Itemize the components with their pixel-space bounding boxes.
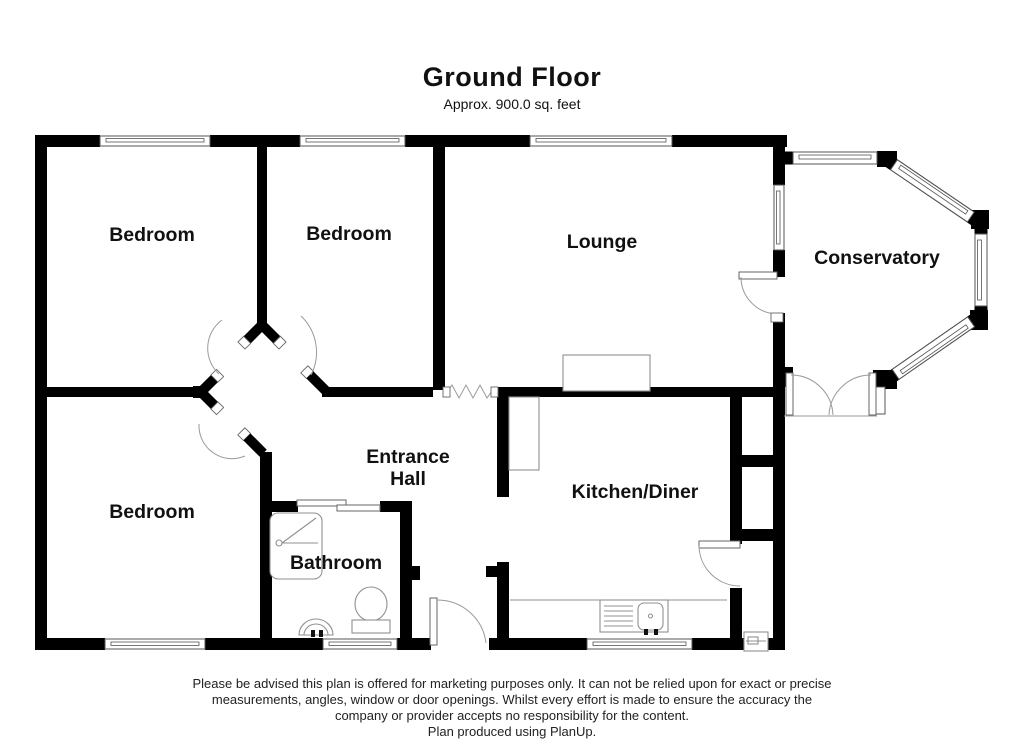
room-label-conservatory: Conservatory: [814, 247, 940, 269]
utility-meter-box: [744, 632, 768, 651]
wash-basin: [299, 619, 333, 637]
bathroom-sliding-door: [297, 500, 380, 511]
room-label-bedroom-top-left: Bedroom: [109, 224, 195, 246]
window-symbol: [891, 160, 975, 222]
room-label-bedroom-top-middle: Bedroom: [306, 223, 392, 245]
kitchen-sink: [600, 600, 668, 635]
floor-plan-canvas: Bedroom Bedroom Lounge Conservatory Bedr…: [0, 0, 1024, 745]
toilet: [352, 587, 390, 633]
conservatory-bay: [775, 151, 989, 416]
lounge-conservatory-door: [739, 272, 783, 322]
hall-door-arcs: [199, 316, 317, 459]
window-symbol: [105, 639, 205, 649]
room-label-entrance-hall-line1: Entrance: [366, 446, 450, 468]
floor-plan-page: Ground Floor Approx. 900.0 sq. feet: [0, 0, 1024, 745]
window-symbol: [587, 639, 692, 649]
zigzag-opening: [443, 385, 498, 398]
window-symbol: [323, 639, 397, 649]
room-label-entrance-hall-line2: Hall: [390, 468, 426, 490]
disclaimer-line: measurements, angles, window or door ope…: [0, 692, 1024, 708]
front-door: [430, 598, 486, 645]
room-label-lounge: Lounge: [567, 231, 638, 253]
window-symbol: [530, 136, 672, 146]
fireplace: [563, 355, 650, 391]
plan-credit: Plan produced using PlanUp.: [0, 724, 1024, 740]
kitchen-pantry-door: [699, 541, 740, 586]
room-label-bedroom-bottom-left: Bedroom: [109, 501, 195, 523]
hall-door-posts: [197, 321, 329, 456]
room-label-bathroom: Bathroom: [290, 552, 382, 574]
interior-walls: [47, 147, 773, 638]
french-doors: [784, 373, 877, 416]
kitchen-unit: [509, 397, 539, 470]
window-symbol: [793, 152, 877, 164]
window-symbol: [100, 136, 210, 146]
window-symbol: [975, 234, 987, 306]
disclaimer-text: Please be advised this plan is offered f…: [0, 676, 1024, 740]
window-symbol: [892, 317, 974, 379]
room-label-kitchen-diner: Kitchen/Diner: [572, 481, 699, 503]
window-symbol: [774, 185, 784, 250]
disclaimer-line: Please be advised this plan is offered f…: [0, 676, 1024, 692]
window-symbol: [300, 136, 405, 146]
disclaimer-line: company or provider accepts no responsib…: [0, 708, 1024, 724]
